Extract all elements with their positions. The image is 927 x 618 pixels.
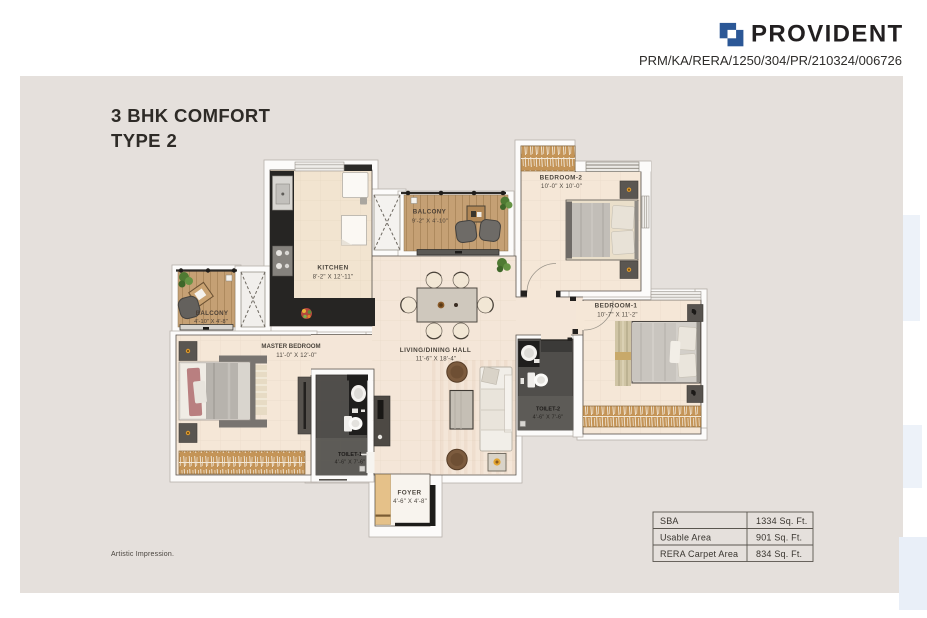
svg-text:10'-0" X 10'-0": 10'-0" X 10'-0" [541,184,582,190]
svg-text:3 BHK COMFORT: 3 BHK COMFORT [111,105,271,126]
svg-text:TOILET-2: TOILET-2 [536,407,560,413]
svg-text:Usable Area: Usable Area [660,532,711,542]
svg-text:11'-6" X 18'-4": 11'-6" X 18'-4" [416,357,456,363]
svg-text:901 Sq. Ft.: 901 Sq. Ft. [756,532,802,542]
svg-text:Artistic Impression.: Artistic Impression. [111,551,174,558]
svg-text:TYPE 2: TYPE 2 [111,130,177,151]
svg-text:MASTER BEDROOM: MASTER BEDROOM [261,343,320,350]
svg-text:11'-0" X 12'-0": 11'-0" X 12'-0" [276,353,316,359]
svg-text:FOYER: FOYER [397,490,421,497]
svg-text:8'-2" X 12'-11": 8'-2" X 12'-11" [313,275,353,281]
svg-text:4'-6" X 7'-6": 4'-6" X 7'-6" [335,460,366,466]
svg-text:PROVIDENT: PROVIDENT [751,21,904,48]
svg-text:BEDROOM-2: BEDROOM-2 [540,175,583,182]
svg-text:BALCONY: BALCONY [196,310,229,317]
svg-text:PRM/KA/RERA/1250/304/PR/210324: PRM/KA/RERA/1250/304/PR/210324/006726 [639,53,902,68]
svg-text:RERA Carpet Area: RERA Carpet Area [660,549,738,559]
svg-text:10'-7" X 11'-2": 10'-7" X 11'-2" [597,313,637,319]
svg-text:TOILET-1: TOILET-1 [338,452,362,458]
svg-text:834 Sq. Ft.: 834 Sq. Ft. [756,549,802,559]
svg-text:BEDROOM-1: BEDROOM-1 [595,303,638,310]
svg-text:SBA: SBA [660,516,679,526]
svg-text:LIVING/DINING HALL: LIVING/DINING HALL [400,347,471,354]
svg-text:4'-6" X 7'-6": 4'-6" X 7'-6" [533,415,564,421]
svg-text:4'-6" X 4'-8": 4'-6" X 4'-8" [393,499,427,505]
svg-text:4'-10" X 4'-8": 4'-10" X 4'-8" [194,319,228,325]
svg-text:9'-2" X 4'-10": 9'-2" X 4'-10" [412,219,448,225]
svg-text:1334 Sq. Ft.: 1334 Sq. Ft. [756,516,807,526]
svg-text:KITCHEN: KITCHEN [317,265,348,272]
svg-text:BALCONY: BALCONY [413,209,447,216]
